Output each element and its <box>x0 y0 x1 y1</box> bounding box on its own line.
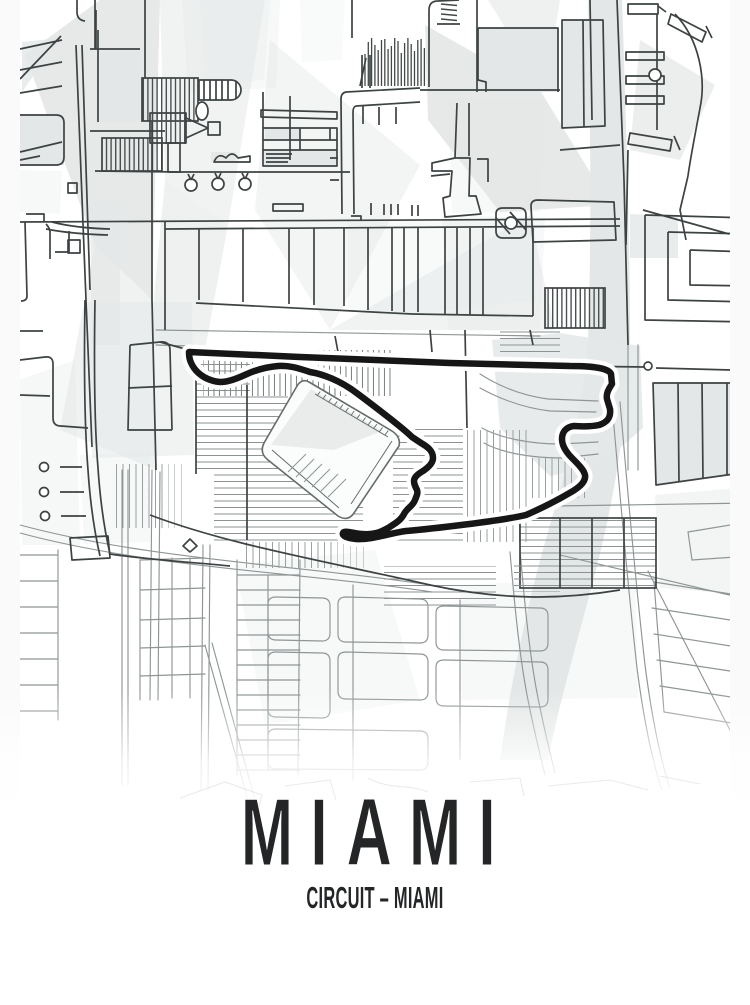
svg-text:M: M <box>241 780 293 886</box>
svg-text:CIRCUIT – MIAMI: CIRCUIT – MIAMI <box>306 882 443 916</box>
svg-text:M: M <box>409 780 461 886</box>
svg-text:A: A <box>346 780 391 886</box>
svg-text:I: I <box>310 780 327 886</box>
svg-text:I: I <box>478 780 495 886</box>
